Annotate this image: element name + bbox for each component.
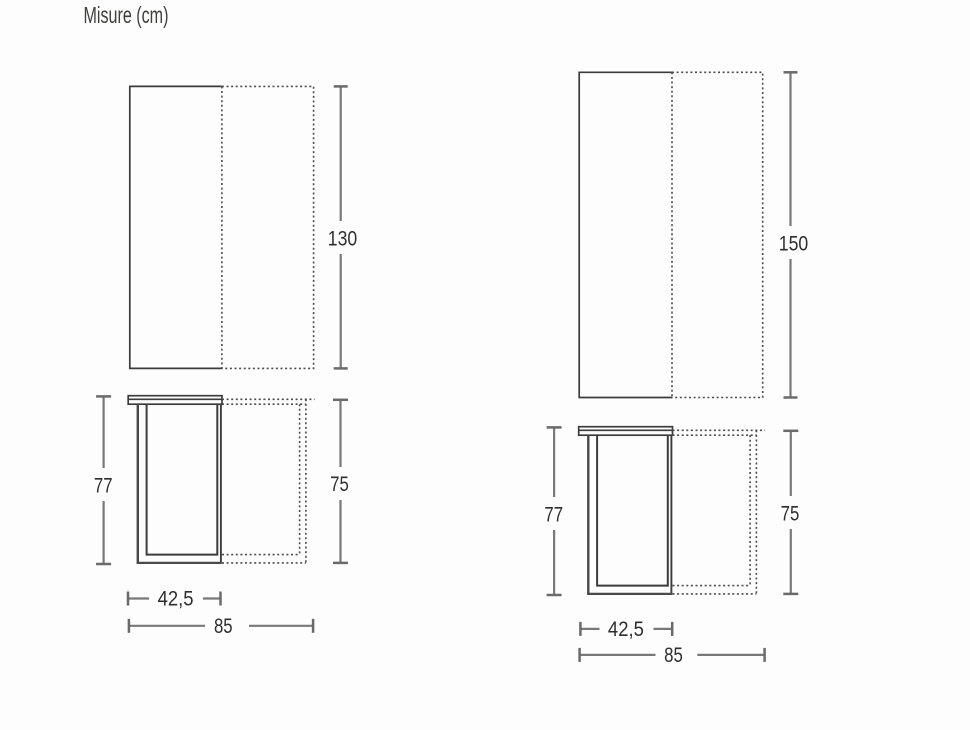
svg-text:75: 75 (781, 503, 800, 526)
svg-text:150: 150 (779, 232, 809, 256)
svg-text:42,5: 42,5 (608, 618, 644, 641)
svg-text:Misure (cm): Misure (cm) (84, 3, 169, 28)
svg-text:85: 85 (214, 615, 233, 638)
svg-text:42,5: 42,5 (158, 587, 194, 610)
svg-text:77: 77 (544, 504, 563, 527)
svg-text:77: 77 (94, 475, 113, 498)
svg-text:130: 130 (328, 227, 358, 251)
svg-text:85: 85 (664, 644, 683, 667)
svg-text:75: 75 (330, 473, 349, 496)
